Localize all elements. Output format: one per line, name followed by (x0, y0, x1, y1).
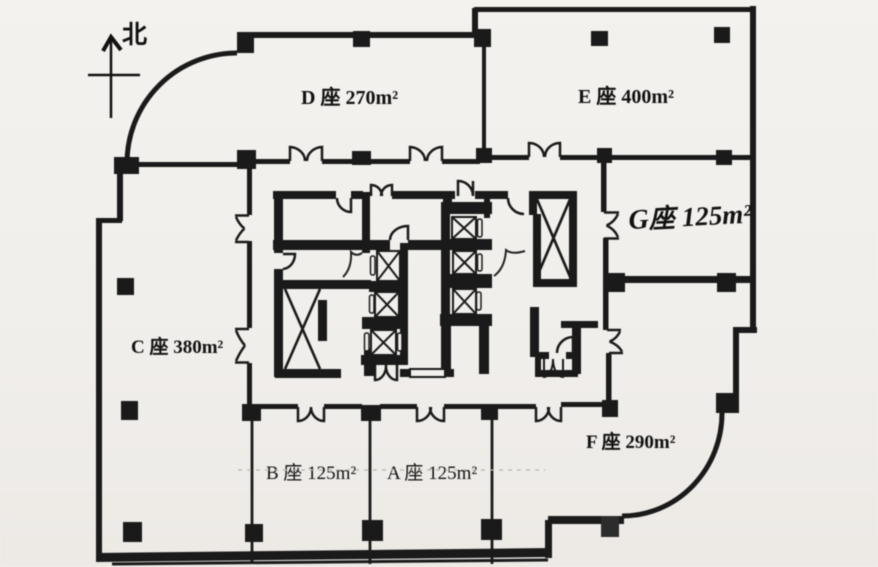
svg-text:D 座 270m²: D 座 270m² (301, 85, 398, 109)
svg-text:E 座 400m²: E 座 400m² (578, 84, 674, 108)
svg-text:A 座 125m²: A 座 125m² (387, 462, 477, 484)
svg-text:C 座 380m²: C 座 380m² (131, 335, 224, 358)
svg-text:F 座 290m²: F 座 290m² (586, 430, 676, 453)
svg-text:B 座 125m²: B 座 125m² (266, 462, 356, 484)
svg-text:北: 北 (122, 21, 147, 49)
